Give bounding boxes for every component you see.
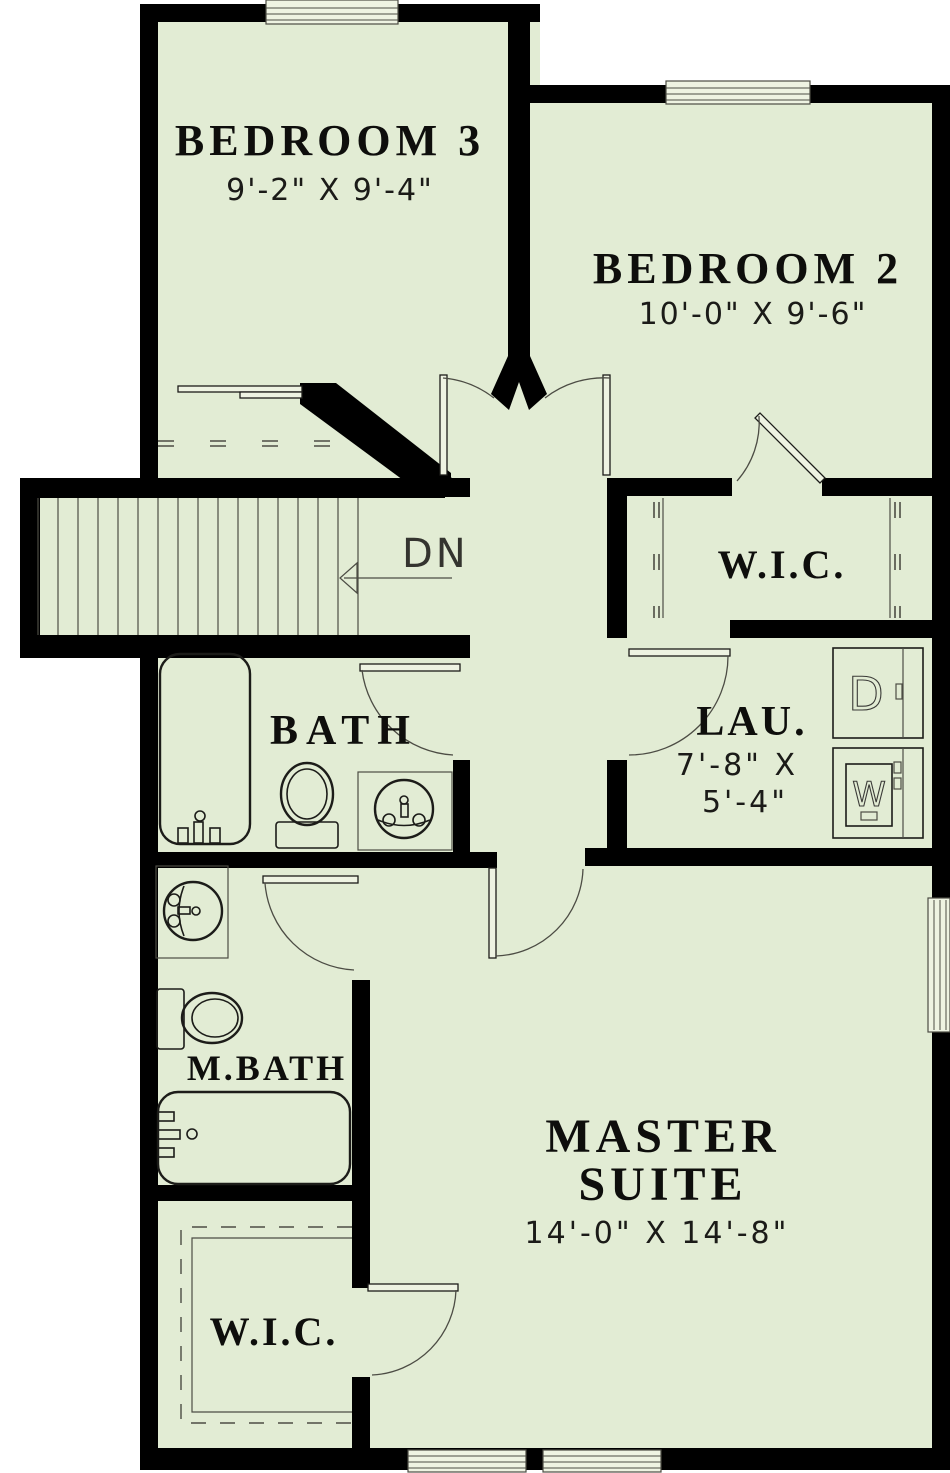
floor-plan: DN	[0, 0, 950, 1473]
master-bottom-window	[408, 1450, 526, 1472]
stairs-direction-label: DN	[402, 531, 469, 577]
bath-label: BATH	[270, 708, 418, 754]
laundry-dims-line1: 7'-8" X	[676, 748, 798, 783]
master-suite-dims: 14'-0" X 14'-8"	[525, 1216, 790, 1251]
floor-plan-page: DN	[0, 0, 950, 1473]
bedroom2-label: BEDROOM 2	[593, 244, 903, 293]
dryer-label: D	[848, 667, 883, 721]
wic-upper-label: W.I.C.	[718, 542, 847, 587]
laundry-dims-line2: 5'-4"	[702, 785, 788, 820]
bedroom3-window	[266, 0, 398, 24]
master-suite-label-line1: MASTER	[545, 1110, 780, 1163]
laundry-label: LAU.	[696, 699, 807, 745]
master-side-window	[928, 898, 950, 1032]
master-suite-label-line2: SUITE	[578, 1158, 747, 1211]
master-bottom-window	[543, 1450, 661, 1472]
bedroom2-window	[666, 81, 810, 104]
wic-master-label: W.I.C.	[210, 1309, 339, 1354]
bedroom3-dims: 9'-2" X 9'-4"	[226, 173, 434, 208]
master-bath-label: M.BATH	[187, 1048, 347, 1088]
sliding-door	[178, 386, 302, 392]
washer-label: W	[852, 775, 886, 815]
bedroom3-label: BEDROOM 3	[175, 116, 485, 165]
sliding-door	[240, 392, 302, 398]
bedroom2-dims: 10'-0" X 9'-6"	[639, 297, 868, 332]
